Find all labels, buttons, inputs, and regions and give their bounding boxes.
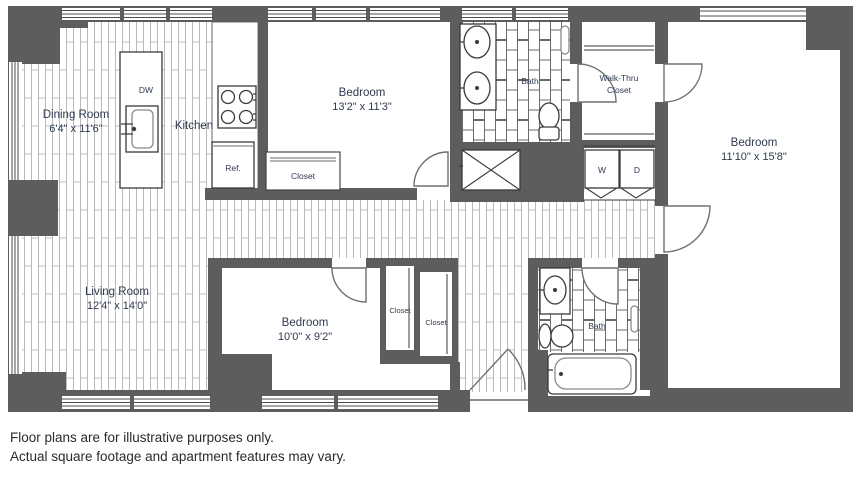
wall — [208, 258, 222, 358]
room-label-bath-top: Bath — [521, 76, 539, 86]
room-label-bedroom-right: Bedroom — [731, 137, 778, 149]
bathtub-faucet-icon — [559, 372, 563, 376]
wall — [366, 258, 382, 268]
wall — [655, 102, 668, 142]
bath-top-vanity — [460, 24, 496, 110]
bath-top-toilet-icon — [539, 103, 559, 129]
wall — [450, 362, 460, 392]
window — [268, 8, 440, 20]
wall — [528, 258, 538, 398]
disclaimer-line-1: Floor plans are for illustrative purpose… — [10, 428, 346, 447]
room-label-walk-thru-closet-1: Walk-Thru — [600, 73, 639, 83]
bath-top-toilet-tank — [539, 127, 559, 140]
wall-pillar — [22, 180, 58, 236]
entry-hall-floor — [458, 258, 528, 398]
floor-plan: Dining Room 6'4" x 11'6" Kitchen Bedroom… — [0, 0, 857, 420]
window — [462, 8, 568, 20]
room-label-bedroom-bottom: Bedroom — [282, 317, 329, 329]
room-label-bath-bottom: Bath — [588, 321, 606, 331]
bath-top-sink-drain — [475, 40, 479, 44]
wall — [640, 258, 668, 390]
wall — [570, 102, 582, 146]
window — [62, 8, 212, 20]
window — [9, 62, 22, 180]
room-dims-dining: 6'4" x 11'6" — [49, 123, 102, 135]
room-label-closet-mid-left: Closet — [389, 306, 411, 315]
wall — [650, 388, 853, 412]
wall — [528, 396, 668, 412]
door-opening — [417, 188, 450, 200]
bath-bottom-sink-drain — [553, 288, 557, 292]
room-label-dining: Dining Room — [43, 109, 109, 121]
bath-bottom-toilet-icon — [551, 325, 573, 347]
room-dims-bedroom-bottom: 10'0" x 9'2" — [278, 331, 332, 343]
kitchen-faucet-icon — [132, 127, 136, 131]
dishwasher-label: DW — [139, 85, 153, 95]
washer-label: W — [598, 165, 606, 175]
dryer-label: D — [634, 165, 640, 175]
room-label-living: Living Room — [85, 286, 149, 298]
disclaimer-line-2: Actual square footage and apartment feat… — [10, 447, 346, 466]
bath-bottom-door-handle — [631, 306, 638, 332]
room-label-closet-mid-right: Closet — [425, 318, 447, 327]
wall — [840, 6, 853, 400]
door-opening — [332, 258, 366, 268]
wall — [436, 390, 470, 412]
wall — [538, 258, 582, 268]
wall — [570, 140, 668, 148]
floor-plan-page: Dining Room 6'4" x 11'6" Kitchen Bedroom… — [0, 0, 857, 481]
room-label-kitchen: Kitchen — [175, 120, 213, 132]
disclaimer: Floor plans are for illustrative purpose… — [10, 428, 346, 466]
shower-door-handle — [561, 26, 569, 54]
window — [700, 8, 806, 20]
room-dims-living: 12'4" x 14'0" — [87, 300, 147, 312]
bath-top-sink-drain — [475, 86, 479, 90]
wall — [538, 350, 548, 398]
window — [62, 396, 210, 409]
room-dims-bedroom-top: 13'2" x 11'3" — [332, 101, 392, 113]
wall — [222, 258, 332, 268]
window — [9, 236, 22, 374]
wall — [208, 354, 272, 394]
hallway-floor — [212, 200, 668, 258]
window — [262, 396, 438, 409]
refrigerator-label: Ref. — [225, 163, 241, 173]
room-dims-bedroom-right: 11'10" x 15'8" — [721, 151, 787, 163]
wall — [450, 190, 534, 202]
room-label-closet-bedroom-top: Closet — [291, 171, 316, 181]
door-opening — [582, 258, 618, 268]
room-label-walk-thru-closet-2: Closet — [607, 85, 632, 95]
bath-bottom-toilet-tank — [539, 324, 551, 348]
wall — [806, 6, 853, 50]
room-label-bedroom-top: Bedroom — [339, 87, 386, 99]
floor-plan-drawing: Dining Room 6'4" x 11'6" Kitchen Bedroom… — [0, 0, 857, 420]
wall — [570, 6, 582, 64]
wall — [655, 22, 668, 64]
wall — [655, 140, 668, 206]
